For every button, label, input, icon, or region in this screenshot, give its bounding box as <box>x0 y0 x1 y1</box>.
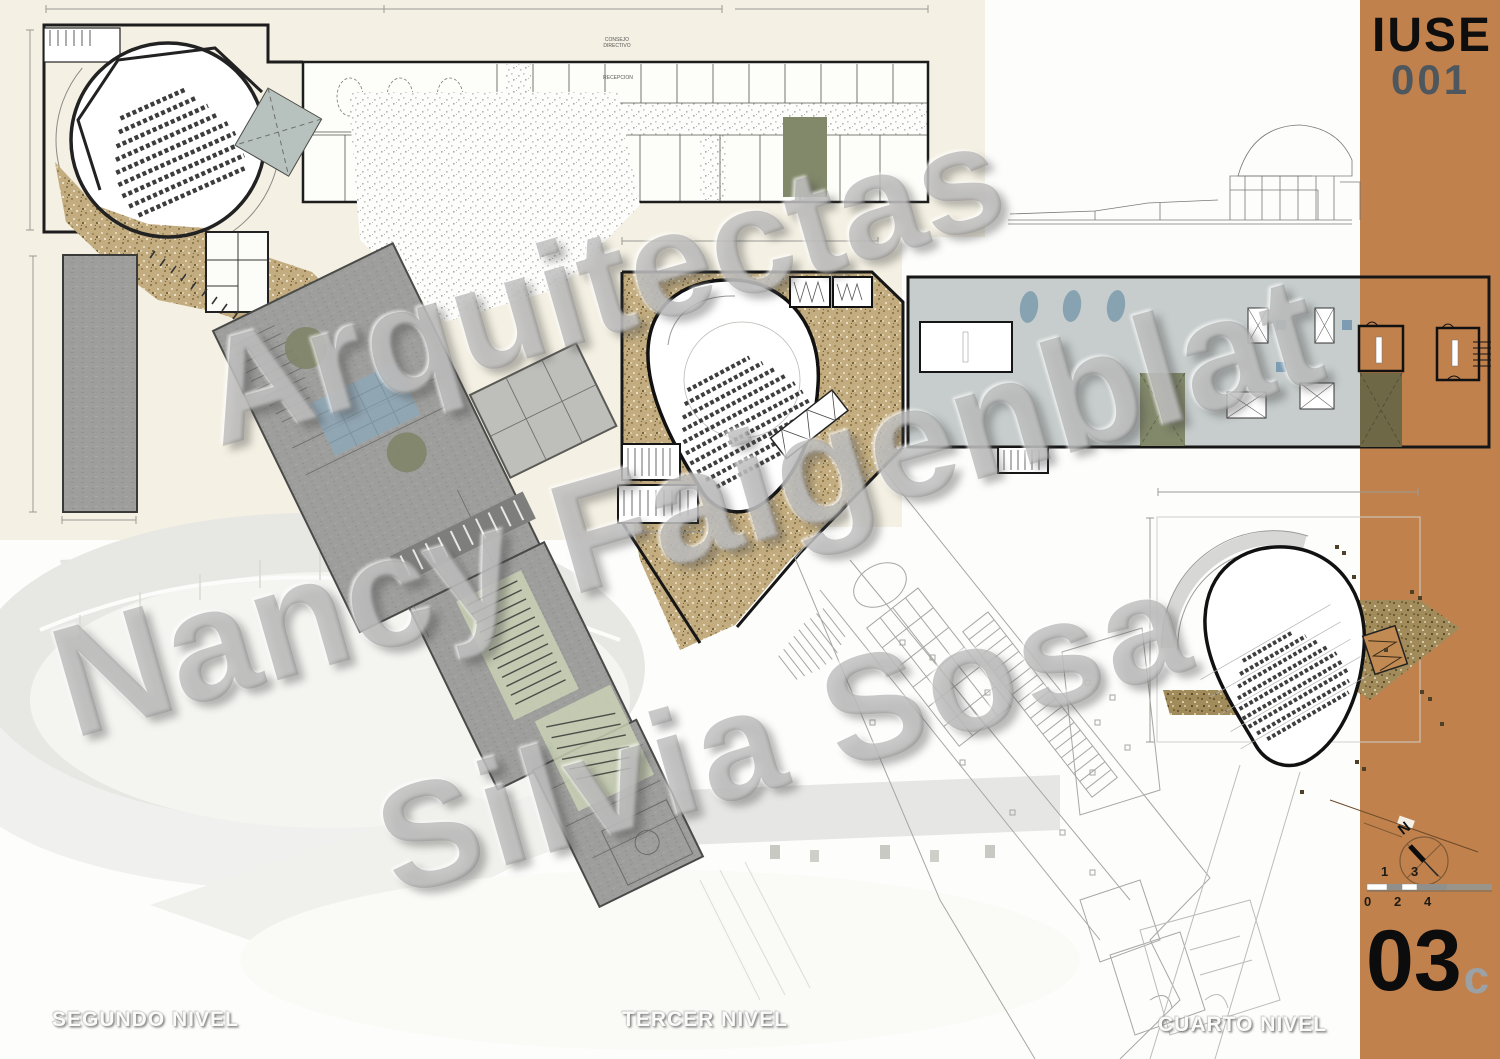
caption-tercer-nivel: TERCER NIVEL <box>622 1008 788 1032</box>
scale-number-4: 4 <box>1424 894 1431 909</box>
section-drawing <box>1008 125 1360 224</box>
sheet-number-main: 03 <box>1366 918 1462 1004</box>
scale-number-3: 3 <box>1411 864 1418 879</box>
room-label-recepcion: RECEPCION <box>598 76 638 82</box>
caption-segundo-nivel: SEGUNDO NIVEL <box>52 1008 239 1032</box>
auditorium-cuarto <box>1205 547 1364 766</box>
sheet-drawing <box>0 0 1500 1059</box>
sheet-number: 03 c <box>1366 918 1489 1004</box>
scale-number-0: 0 <box>1364 894 1371 909</box>
presentation-board: CONSEJO DIRECTIVO RECEPCION Arquitectas … <box>0 0 1500 1059</box>
scale-number-1: 1 <box>1381 864 1388 879</box>
scale-number-2: 2 <box>1394 894 1401 909</box>
sheet-number-suffix: c <box>1464 954 1490 1000</box>
room-label-consejo: CONSEJO DIRECTIVO <box>595 38 639 50</box>
series-code: IUSE <box>1372 8 1492 63</box>
caption-cuarto-nivel: CUARTO NIVEL <box>1158 1013 1327 1037</box>
scale-bar <box>1367 884 1492 891</box>
gray-deck <box>63 255 137 512</box>
roof-sage-2 <box>783 117 827 197</box>
series-number: 001 <box>1391 56 1470 104</box>
